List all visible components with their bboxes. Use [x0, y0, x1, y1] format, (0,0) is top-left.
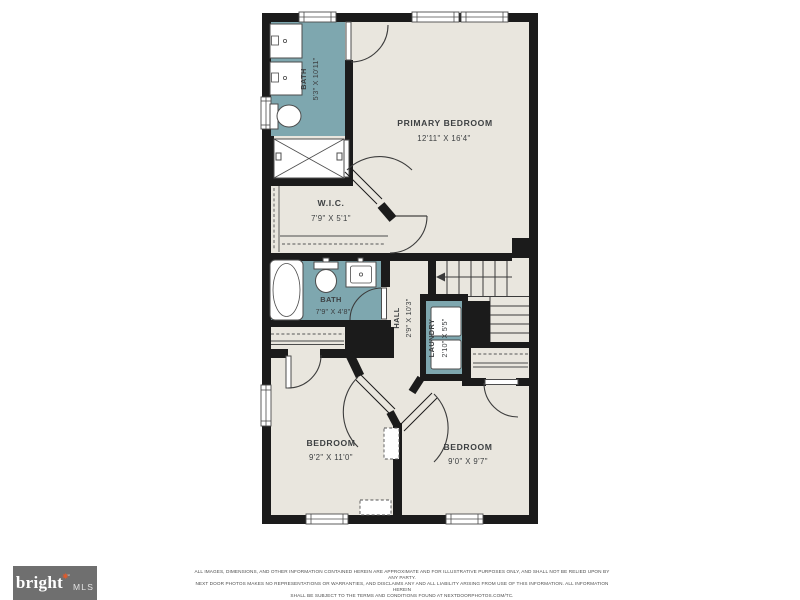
toilet-icon — [270, 104, 301, 129]
sink-icon — [346, 258, 376, 287]
disclaimer-line: SHALL BE SUBJECT TO THE TERMS AND CONDIT… — [193, 593, 611, 599]
logo-star-icon: ✷ — [62, 572, 69, 581]
floor-plan-page: BATH 5'3" X 10'11" PRIMARY BEDROOM 12'11… — [0, 0, 800, 600]
room-label-laundry: LAUNDRY — [427, 319, 436, 358]
room-dims-bedroom-right: 9'0" X 9'7" — [448, 457, 488, 466]
vanity-sink-icon — [270, 24, 302, 58]
room-dims-bath-middle: 7'9" X 4'8" — [316, 307, 351, 316]
room-dims-primary-bedroom: 12'11" X 16'4" — [417, 134, 470, 143]
room-label-primary-bedroom: PRIMARY BEDROOM — [397, 118, 492, 128]
logo-suffix-text: MLS — [73, 582, 94, 592]
disclaimer-text: ALL IMAGES, DIMENSIONS, AND OTHER INFORM… — [193, 569, 611, 599]
floor-plan: BATH 5'3" X 10'11" PRIMARY BEDROOM 12'11… — [0, 0, 800, 600]
logo-brand-text: bright ✷ — [16, 573, 63, 593]
window-bedroom-left-side — [261, 385, 271, 426]
room-dims-wic: 7'9" X 5'1" — [311, 214, 351, 223]
shower-icon — [274, 139, 344, 178]
vanity-sink-icon — [270, 62, 302, 95]
dashed-fixture — [384, 428, 399, 459]
room-label-bedroom-right: BEDROOM — [443, 442, 492, 452]
bright-mls-logo: bright ✷ ™ MLS — [13, 566, 97, 600]
room-dims-laundry: 2'10" X 5'5" — [440, 318, 449, 357]
window-bedroom-left-bottom — [306, 514, 348, 524]
room-dims-bedroom-left: 9'2" X 11'0" — [309, 453, 353, 462]
dashed-fixture — [360, 500, 391, 515]
window-bath-upper-top — [299, 12, 336, 22]
room-label-bedroom-left: BEDROOM — [306, 438, 355, 448]
window-bedroom-right-bottom — [446, 514, 483, 524]
window-primary-top-2 — [461, 12, 508, 22]
window-primary-top-1 — [412, 12, 459, 22]
room-dims-bath-upper: 5'3" X 10'11" — [311, 57, 320, 100]
room-label-bath-upper: BATH — [299, 68, 308, 90]
room-label-hall: HALL — [392, 307, 401, 328]
disclaimer-line: NEXT DOOR PHOTOS MAKES NO REPRESENTATION… — [193, 581, 611, 593]
room-label-bath-middle: BATH — [320, 295, 342, 304]
room-dims-hall: 2'9" X 10'3" — [404, 298, 413, 337]
room-label-wic: W.I.C. — [318, 198, 345, 208]
shower-glass-panel — [344, 140, 349, 177]
disclaimer-line: ALL IMAGES, DIMENSIONS, AND OTHER INFORM… — [193, 569, 611, 581]
bathtub-icon — [270, 260, 303, 320]
toilet-icon — [314, 258, 338, 293]
